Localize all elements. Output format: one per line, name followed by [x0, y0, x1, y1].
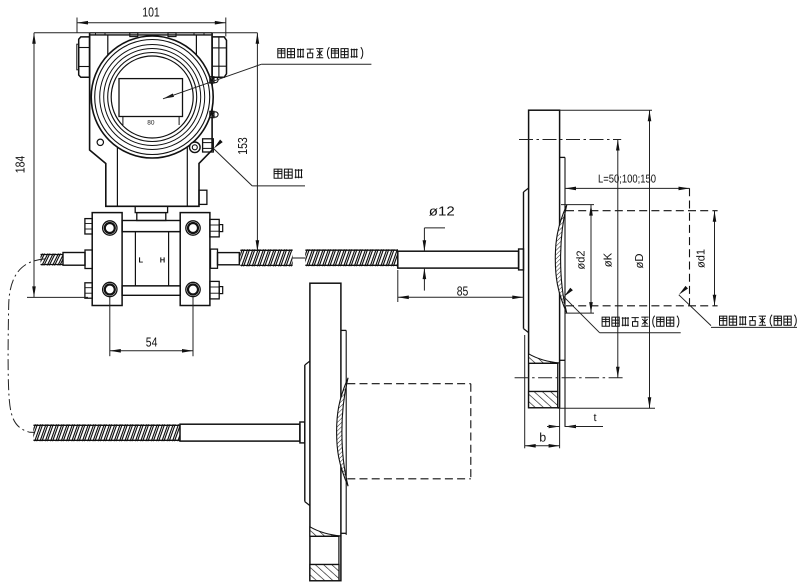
svg-text:øD: øD: [634, 254, 646, 269]
svg-text:L: L: [139, 256, 144, 265]
svg-text:L=50;100;150: L=50;100;150: [598, 174, 656, 186]
svg-text:80: 80: [147, 119, 155, 126]
svg-text:ø12: ø12: [429, 204, 455, 219]
svg-text:153: 153: [235, 137, 250, 155]
svg-text:85: 85: [457, 283, 469, 298]
svg-text:t: t: [593, 412, 596, 424]
svg-text:ød2: ød2: [576, 251, 588, 270]
svg-text:H: H: [160, 256, 165, 265]
svg-text:184: 184: [13, 156, 28, 174]
svg-text:101: 101: [142, 5, 160, 20]
svg-text:øK: øK: [602, 252, 614, 267]
svg-text:ød1: ød1: [695, 249, 707, 268]
svg-text:b: b: [539, 430, 546, 444]
svg-text:54: 54: [146, 335, 158, 350]
